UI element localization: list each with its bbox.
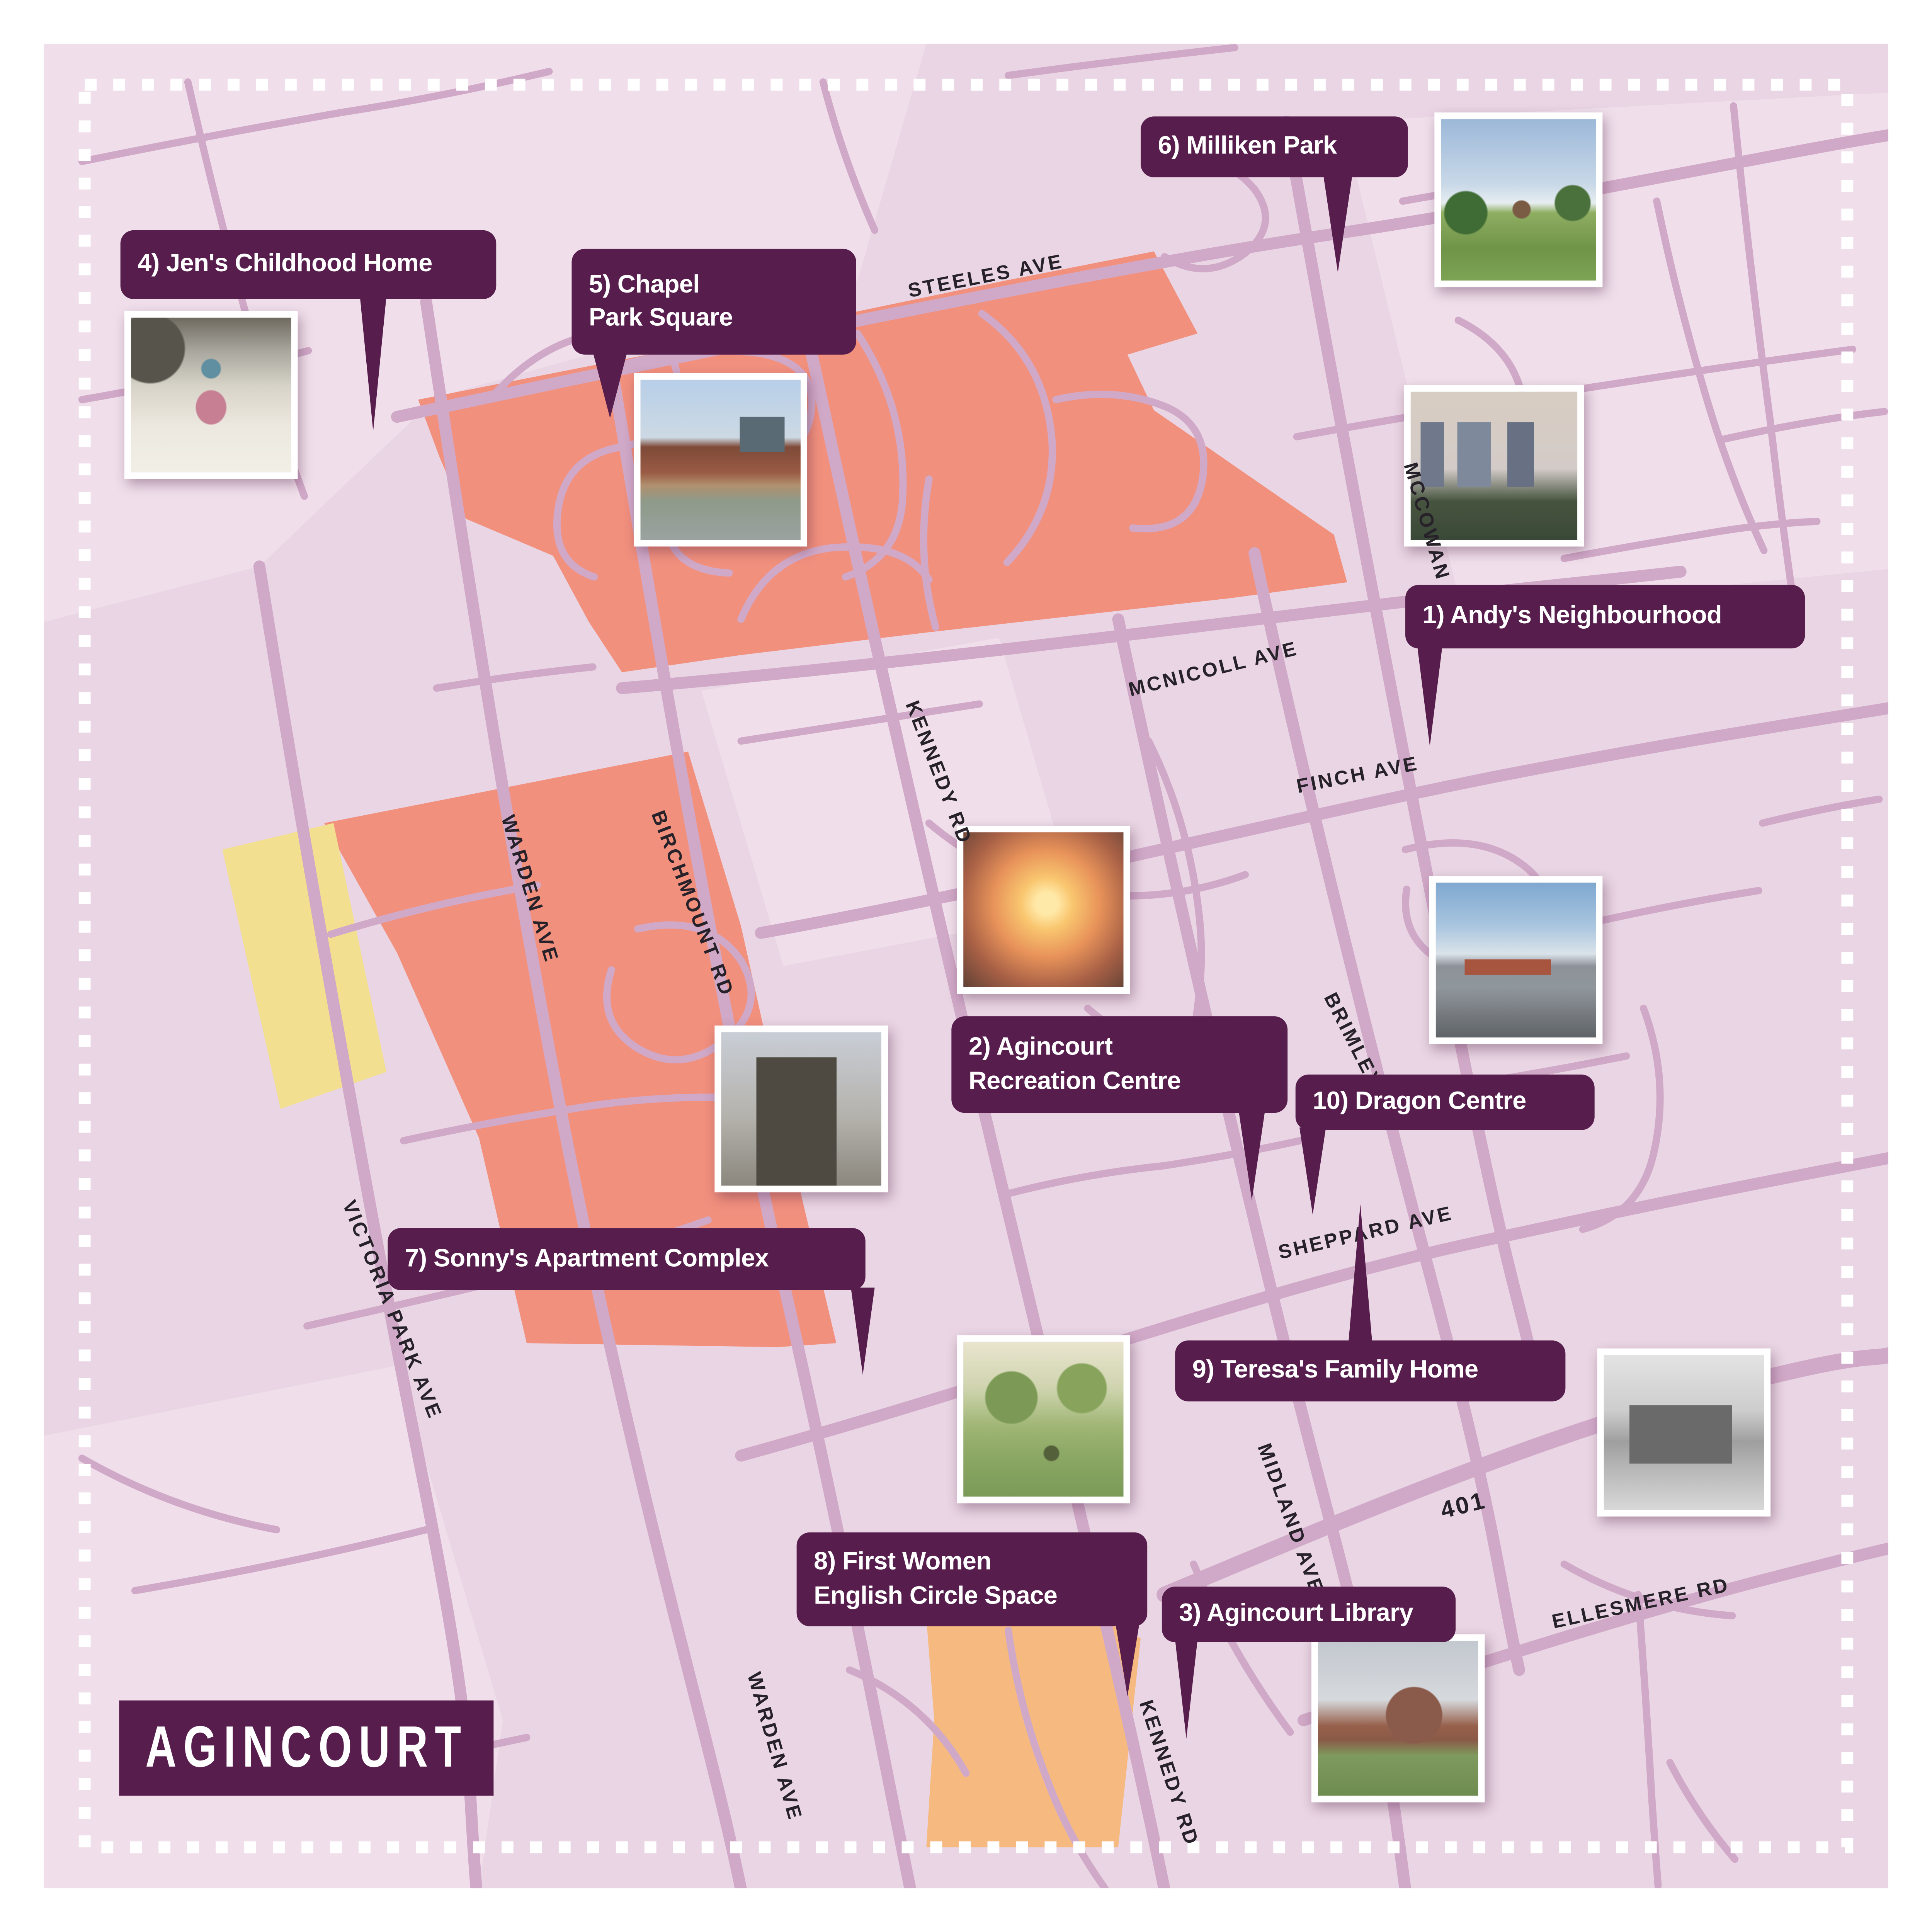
teresas-family-home-photo — [1597, 1349, 1771, 1517]
callout-andys-neighbourhood: 1) Andy's Neighbourhood — [1405, 585, 1805, 648]
sonnys-apartment-photo — [714, 1026, 888, 1192]
map-title: AGINCOURT — [145, 1715, 468, 1781]
map-title-box: AGINCOURT — [119, 1701, 493, 1796]
jens-childhood-home-photo — [124, 311, 298, 479]
dragon-centre-photo — [1429, 876, 1603, 1044]
agincourt-map: 4) Jen's Childhood Home 5) Chapel Park S… — [0, 0, 1932, 1932]
agincourt-library-photo — [1311, 1634, 1485, 1802]
first-women-english-circle-photo — [957, 1335, 1130, 1503]
callout-teresas-family-home: 9) Teresa's Family Home — [1175, 1340, 1565, 1401]
callout-first-women-english-circle: 8) First Women English Circle Space — [797, 1532, 1148, 1626]
chapel-park-square-photo — [634, 373, 807, 547]
callout-milliken-park: 6) Milliken Park — [1141, 116, 1408, 177]
callout-agincourt-library: 3) Agincourt Library — [1162, 1587, 1456, 1642]
callout-jens-childhood-home: 4) Jen's Childhood Home — [121, 230, 497, 299]
callout-agincourt-recreation-centre: 2) Agincourt Recreation Centre — [951, 1016, 1287, 1113]
callout-sonnys-apartment-complex: 7) Sonny's Apartment Complex — [388, 1228, 865, 1290]
milliken-park-photo — [1434, 112, 1602, 287]
callout-dragon-centre: 10) Dragon Centre — [1296, 1075, 1595, 1130]
recreation-centre-photo — [957, 826, 1130, 994]
callout-chapel-park-square: 5) Chapel Park Square — [571, 249, 856, 355]
